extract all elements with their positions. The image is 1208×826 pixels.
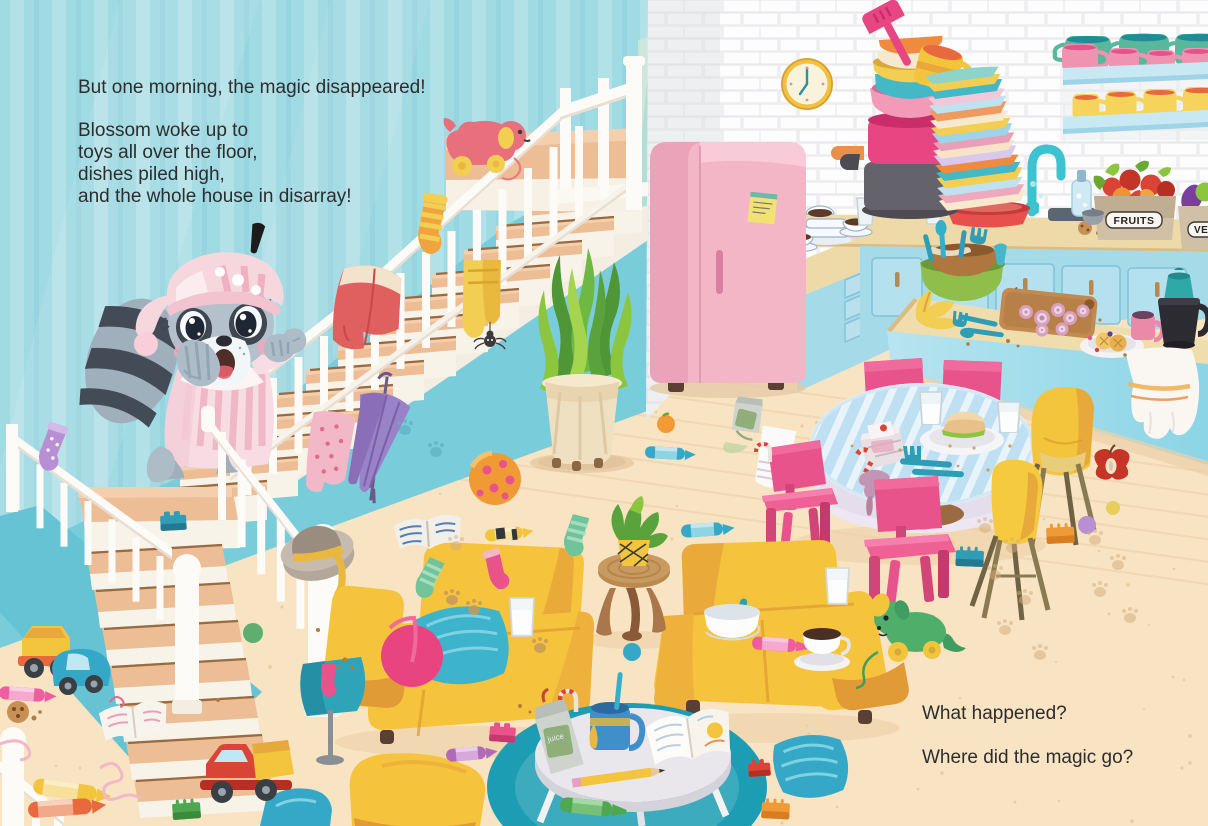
svg-text:and the whole house in disarra: and the whole house in disarray!: [78, 186, 352, 207]
svg-text:FRUITS: FRUITS: [1114, 215, 1155, 227]
svg-text:dishes piled high,: dishes piled high,: [78, 164, 225, 185]
svg-text:toys all over the floor,: toys all over the floor,: [78, 142, 258, 163]
svg-text:Where did the magic go?: Where did the magic go?: [922, 747, 1133, 768]
svg-text:Blossom woke up to: Blossom woke up to: [78, 120, 248, 141]
svg-text:What happened?: What happened?: [922, 703, 1067, 724]
svg-text:VEGE: VEGE: [1194, 225, 1208, 236]
svg-text:But one morning, the magic dis: But one morning, the magic disappeared!: [78, 77, 426, 98]
